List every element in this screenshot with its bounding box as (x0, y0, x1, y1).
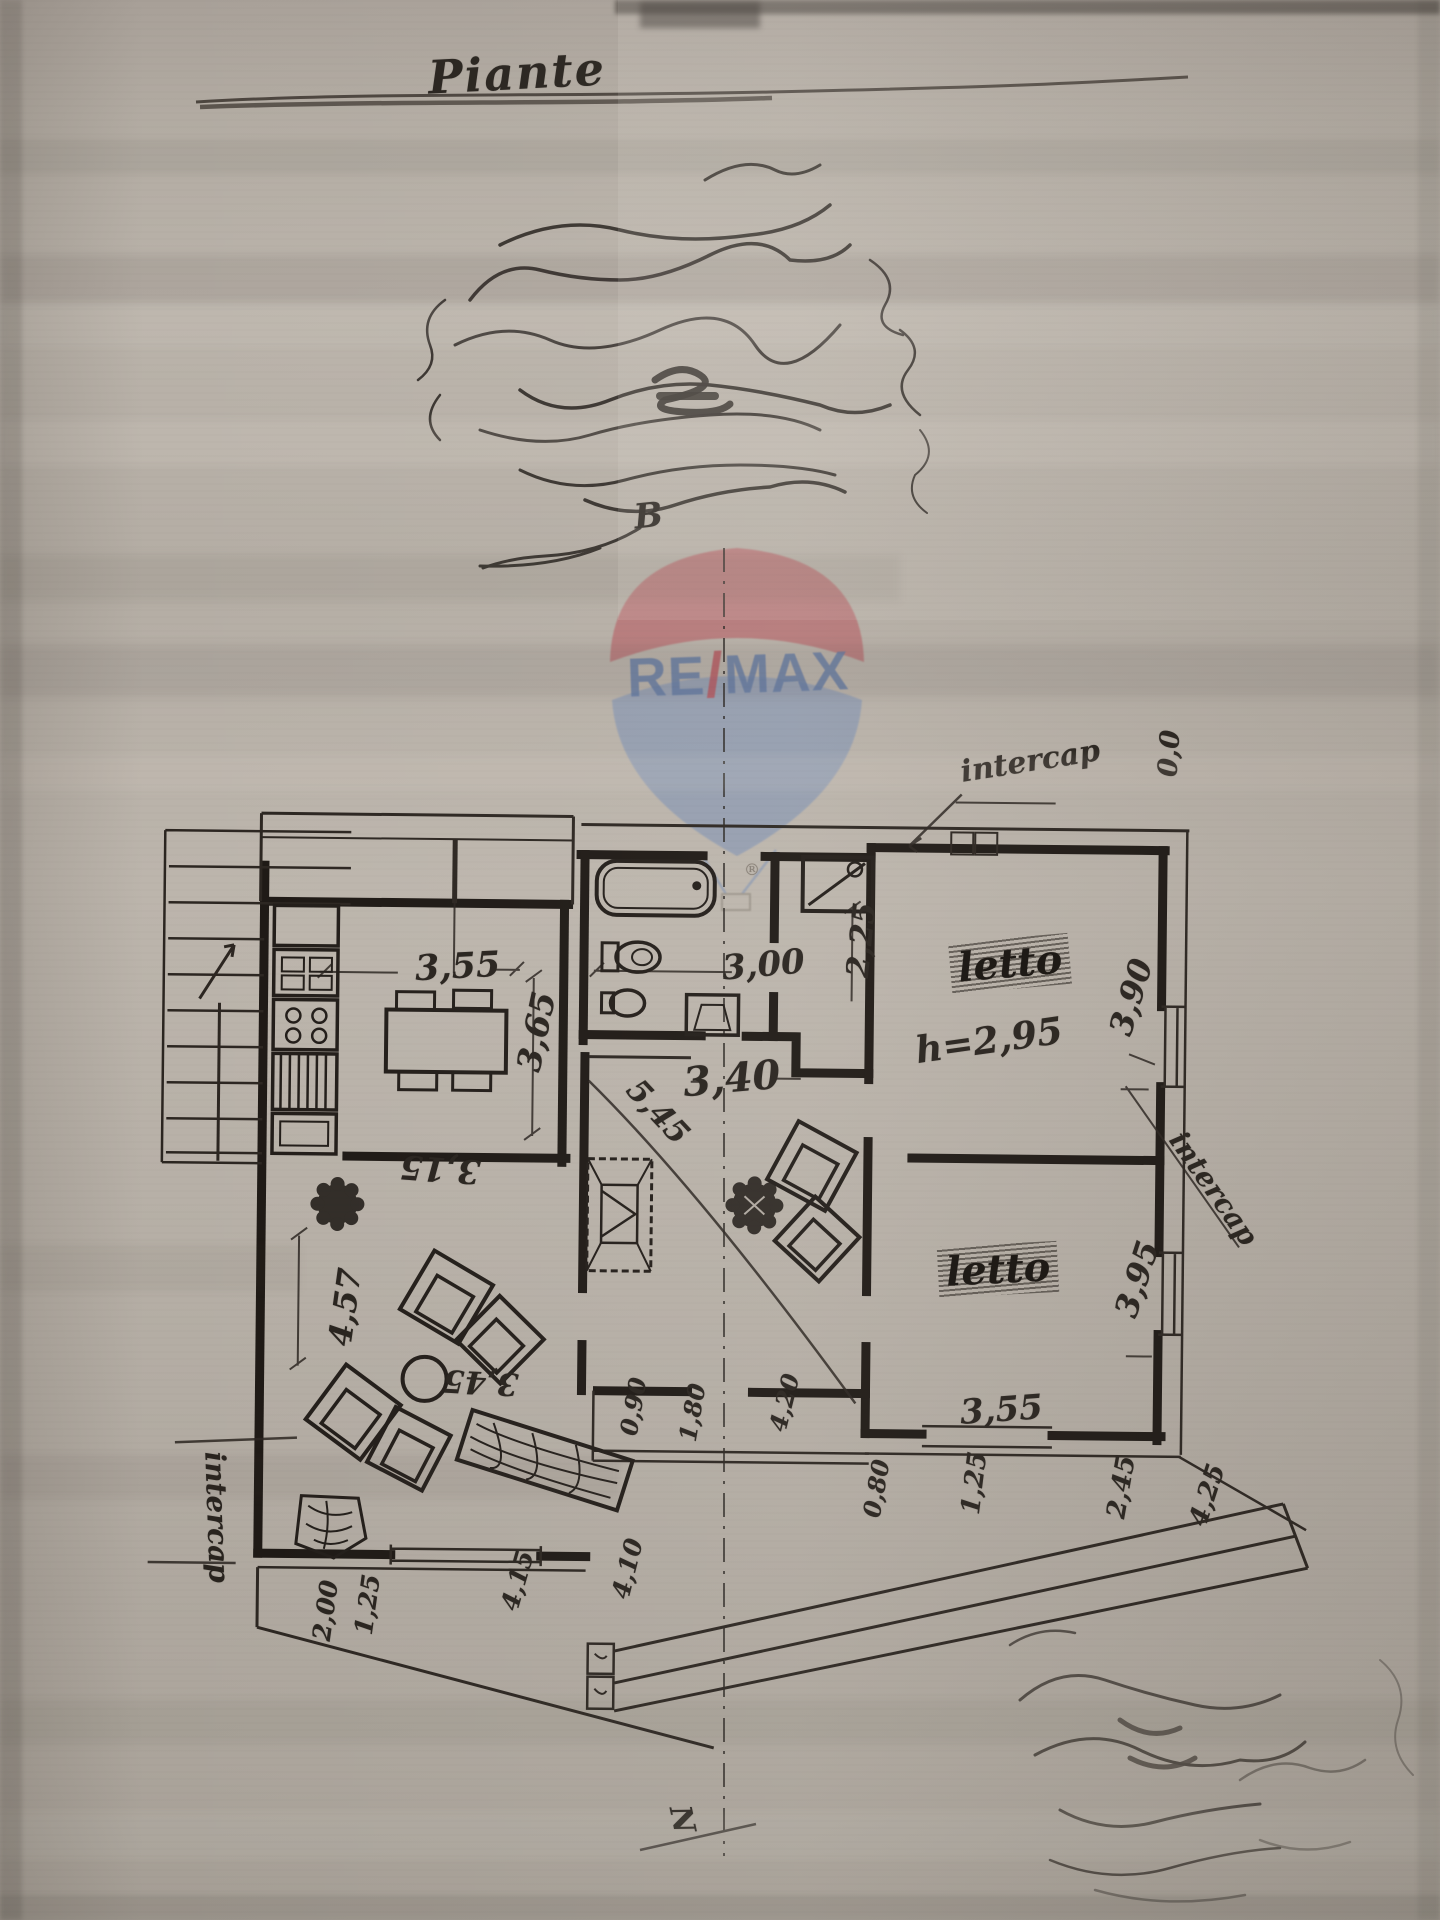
page-title: Piante (427, 41, 607, 104)
dim-kitchen-width: 3,55 (414, 944, 501, 989)
registered-mark: ® (744, 860, 760, 879)
remax-logo-text: RE/MAX (597, 631, 879, 713)
dim-bath-width: 3,00 (720, 941, 806, 988)
dim-kitchen-bottom: 3,15 (399, 1147, 482, 1192)
remax-slash: / (704, 641, 725, 712)
dim-hall-width: 3,40 (681, 1051, 782, 1106)
title-underline (196, 77, 1188, 107)
room-label-bedroom-bottom: letto (937, 1241, 1060, 1298)
remax-max: MAX (723, 639, 850, 705)
section-label-b: B (632, 495, 665, 538)
dim-living-width: 3,45 (442, 1362, 519, 1402)
dim-bedroom-bottom-width: 3,55 (959, 1387, 1044, 1433)
scribble-annotation (418, 164, 929, 568)
scanned-floorplan-page: Piante RE/MAX ® B N intercap intercap in… (0, 0, 1440, 1920)
room-label-bedroom-top: letto (948, 933, 1072, 994)
pencil-doodle (1010, 1631, 1413, 1902)
floorplan-drawing (0, 0, 1440, 1920)
annotation-intercap-left: intercap (198, 1451, 236, 1582)
annotation-origin: 0,0 (1152, 729, 1186, 778)
remax-re: RE (626, 644, 707, 709)
